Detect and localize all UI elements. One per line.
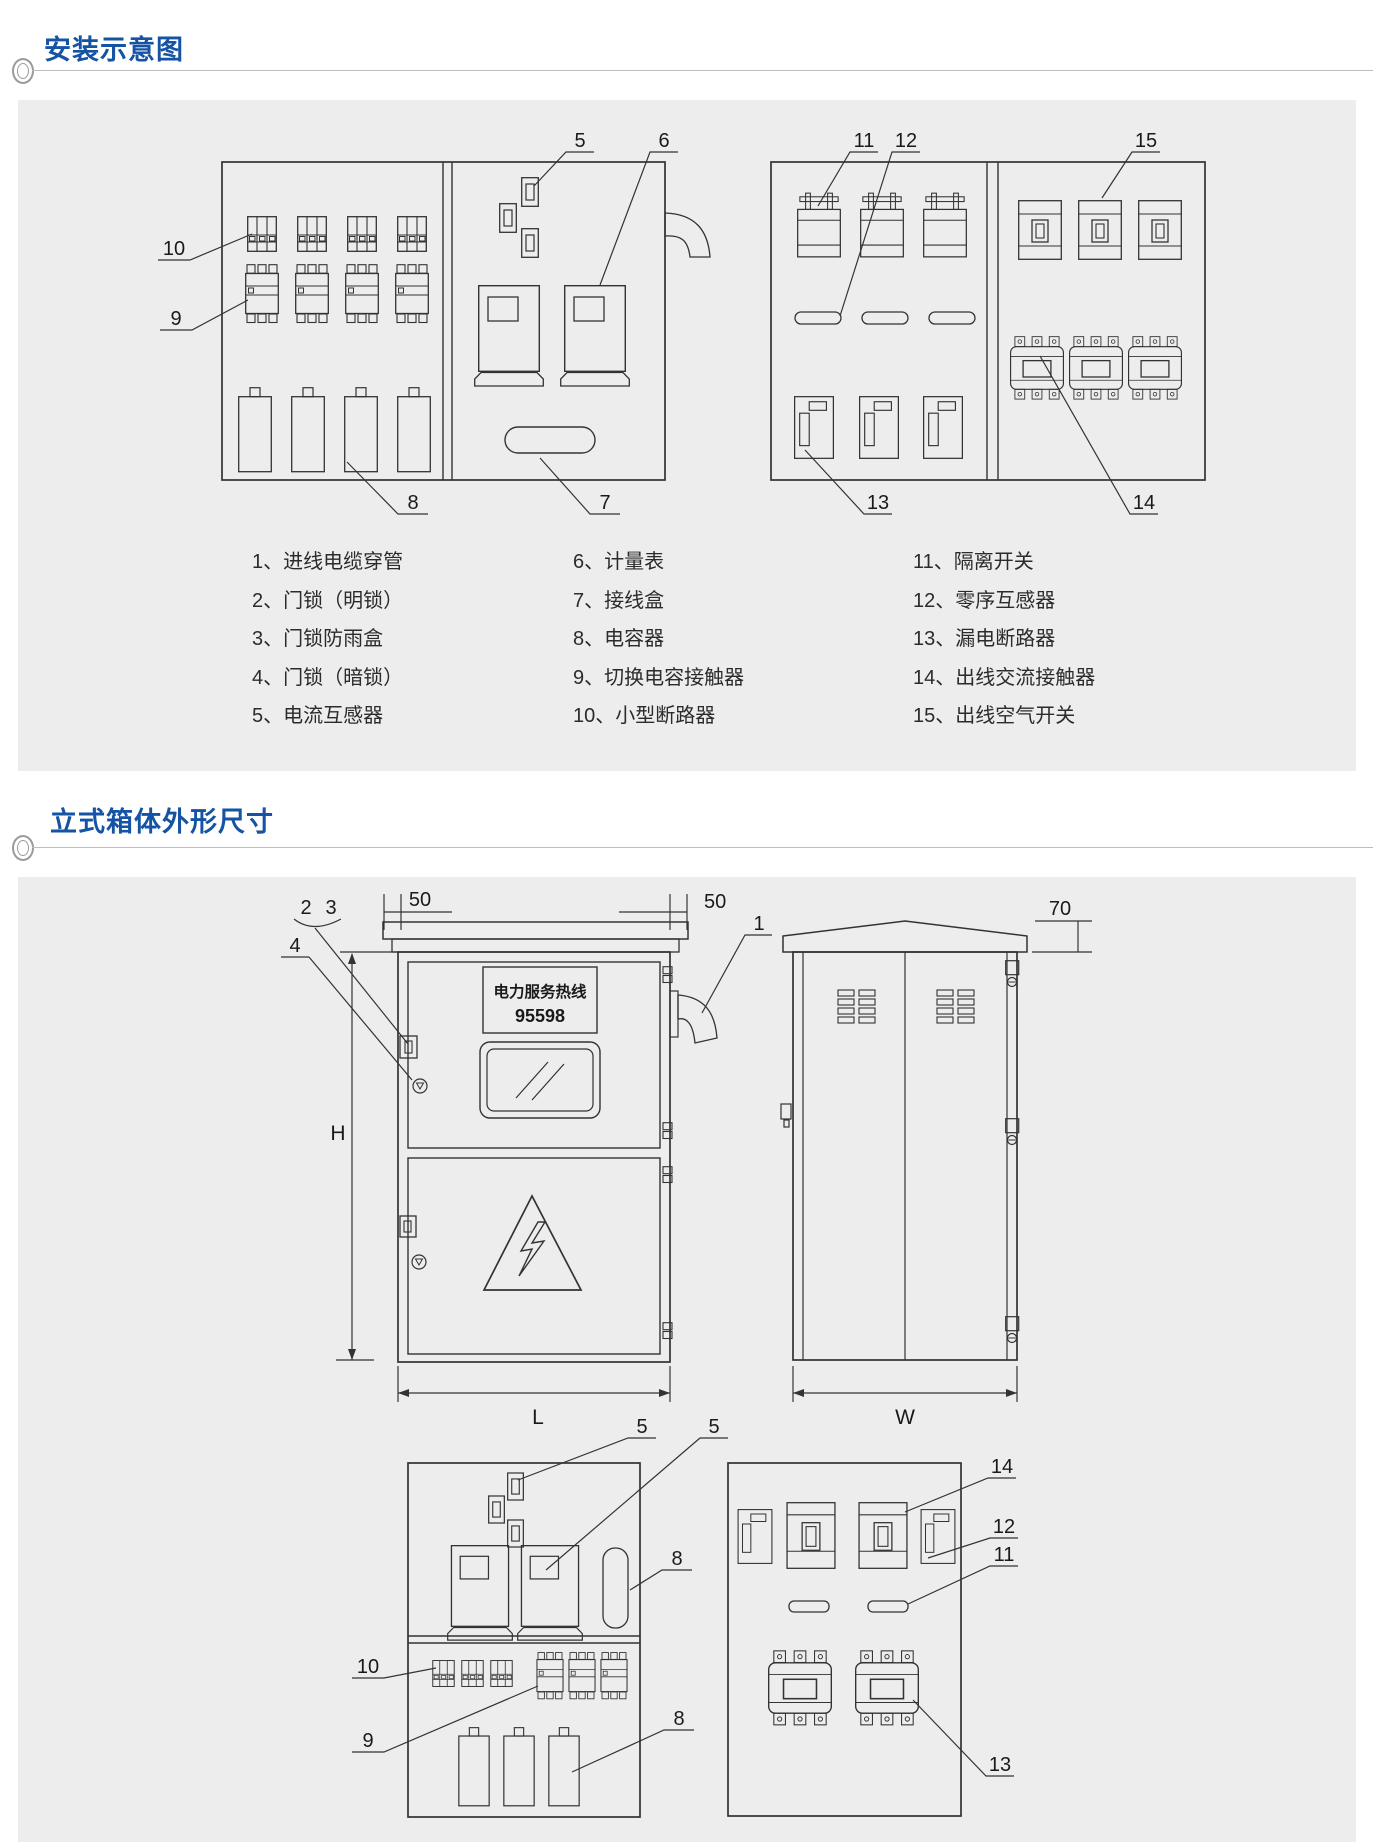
callout-capacitor: 8 — [673, 1708, 684, 1730]
mcb-symbol — [462, 1661, 483, 1687]
callout-isolator: 11 — [854, 130, 875, 152]
capacitor-symbol — [239, 388, 272, 472]
dim-arrows — [348, 953, 670, 1397]
dim-height: H — [330, 1122, 345, 1145]
section2-title: 立式箱体外形尺寸 — [50, 800, 274, 839]
mcb-symbol — [348, 217, 377, 252]
leakage-breaker-symbol — [738, 1510, 772, 1564]
manual-page: 安装示意图 立式箱体外形尺寸 1、进线电缆穿管 2、门锁（明锁） 3、门锁防雨盒… — [0, 0, 1373, 1848]
callout-lock-hidden: 4 — [289, 935, 300, 957]
capacitor-symbol — [459, 1728, 489, 1806]
dim-50-left: 50 — [409, 889, 431, 911]
dim-width: W — [895, 1406, 915, 1429]
install-right-callouts — [805, 152, 1160, 514]
dim-70: 70 — [1049, 898, 1071, 920]
current-transformers — [500, 178, 539, 258]
capacitor-symbol — [398, 388, 431, 472]
contactor-symbol — [296, 265, 329, 323]
front-view: 电力服务热线 95598 — [383, 922, 717, 1362]
contactor-symbol — [569, 1653, 595, 1699]
air-switch-row — [1019, 201, 1182, 260]
leakage-breaker-row — [795, 397, 963, 459]
lightning-icon — [519, 1222, 545, 1276]
callout-zero-ct: 12 — [993, 1516, 1015, 1538]
callout-air-switch: 15 — [1135, 130, 1157, 152]
section2-ring-icon — [12, 835, 34, 861]
zero-ct-symbol — [789, 1601, 829, 1612]
meter-window — [480, 1042, 600, 1118]
zero-ct-symbol — [929, 312, 975, 324]
leakage-breaker-symbol — [795, 397, 834, 459]
callout-ac-contactor: 14 — [1133, 492, 1155, 514]
section1-ring-icon — [12, 58, 34, 84]
callout-leakage: 13 — [867, 492, 889, 514]
air-switch-symbol — [1139, 201, 1182, 260]
hidden-lock — [413, 1079, 427, 1093]
side-view — [781, 921, 1027, 1360]
meter-symbol — [518, 1546, 583, 1641]
ct-symbol — [508, 1473, 524, 1500]
cable-conduit-symbol — [665, 213, 710, 257]
mcb-row — [248, 217, 427, 252]
section2-divider — [32, 847, 1373, 848]
sign-line1: 电力服务热线 — [493, 982, 587, 1001]
leakage-breaker-symbol — [924, 397, 963, 459]
contactor-symbol — [246, 265, 279, 323]
bottom-left-interior — [408, 1463, 640, 1817]
section1-divider — [32, 70, 1373, 71]
dim-length: L — [532, 1406, 544, 1429]
side-latch — [781, 1104, 791, 1127]
glass-glare — [516, 1062, 548, 1098]
isolator-symbol — [924, 193, 967, 257]
install-right-cabinet — [771, 162, 1205, 480]
install-diagram: 5 6 10 9 8 7 — [0, 100, 1373, 771]
lower-door-locks — [400, 1216, 426, 1269]
roof-lip — [392, 939, 679, 952]
isolator-symbol — [861, 193, 904, 257]
ct-symbol — [522, 178, 539, 207]
ac-contactor-row — [1011, 337, 1182, 399]
leakage-breaker-symbol — [860, 397, 899, 459]
callout-mcb: 10 — [357, 1656, 379, 1678]
callout-zero-ct: 12 — [895, 130, 917, 152]
capacitor-row — [239, 388, 431, 472]
callout-meter: 6 — [658, 130, 669, 152]
callout-ct: 5 — [574, 130, 585, 152]
callout-contactor: 9 — [170, 308, 181, 330]
ct-symbol — [522, 229, 539, 258]
side-roof — [783, 921, 1027, 952]
callout-breaker: 14 — [991, 1456, 1013, 1478]
dim-50-right: 50 — [704, 891, 726, 913]
warning-triangle — [484, 1196, 581, 1290]
callout-rain-box: 3 — [325, 897, 336, 919]
bottom-right-interior — [728, 1463, 961, 1816]
upper-door-locks — [400, 1036, 427, 1093]
ct-symbol — [489, 1496, 505, 1523]
callout-conduit: 1 — [753, 913, 764, 935]
callout-junction: 8 — [671, 1548, 682, 1570]
capacitor-symbol — [292, 388, 325, 472]
hidden-lock — [412, 1255, 426, 1269]
zero-ct-row — [795, 312, 975, 324]
contactor-symbol — [396, 265, 429, 323]
junction-box-symbol — [505, 427, 595, 453]
install-left-callouts — [158, 152, 678, 514]
ct-symbol — [508, 1520, 524, 1547]
callout-isolator: 11 — [994, 1544, 1015, 1566]
callout-contactor: 9 — [362, 1730, 373, 1752]
ct-symbol — [500, 204, 517, 233]
install-left-cabinet — [222, 162, 710, 480]
ac-contactor-symbol — [1070, 337, 1123, 399]
air-switch-symbol — [1019, 201, 1062, 260]
callout-capacitor: 8 — [407, 492, 418, 514]
ac-contactor-symbol — [1011, 337, 1064, 399]
meter-symbol — [475, 286, 544, 386]
callout-contactor: 13 — [989, 1754, 1011, 1776]
ac-contactor-symbol — [856, 1651, 919, 1725]
zero-ct-symbol — [795, 312, 841, 324]
capacitor-symbol — [345, 388, 378, 472]
mcb-symbol — [298, 217, 327, 252]
callout-lock-open: 2 — [300, 897, 311, 919]
mcb-symbol — [433, 1661, 454, 1687]
roof-top — [383, 922, 688, 939]
capacitor-symbol — [504, 1728, 534, 1806]
section1-title: 安装示意图 — [44, 28, 184, 67]
breaker-symbol — [859, 1503, 907, 1569]
callout-ct-a: 5 — [636, 1416, 647, 1438]
contactor-symbol — [601, 1653, 627, 1699]
junction-box-symbol — [603, 1548, 628, 1628]
dimensions-diagram: 电力服务热线 95598 — [0, 877, 1373, 1842]
capacitor-symbol — [549, 1728, 579, 1806]
mcb-symbol — [398, 217, 427, 252]
contactor-symbol — [537, 1653, 563, 1699]
contactor-row — [246, 265, 429, 323]
isolator-row — [798, 193, 967, 257]
callout-mcb: 10 — [163, 238, 185, 260]
callout-ct-b: 5 — [708, 1416, 719, 1438]
zero-ct-symbol — [862, 312, 908, 324]
callout-junction-box: 7 — [599, 492, 610, 514]
ac-contactor-symbol — [1129, 337, 1182, 399]
isolator-symbol — [798, 193, 841, 257]
sign-line2: 95598 — [515, 1006, 565, 1026]
air-switch-symbol — [1079, 201, 1122, 260]
vent-louvers — [838, 990, 974, 1023]
zero-ct-symbol — [868, 1601, 908, 1612]
contactor-symbol — [346, 265, 379, 323]
ac-contactor-symbol — [769, 1651, 832, 1725]
mcb-symbol — [491, 1661, 512, 1687]
meter-symbol — [561, 286, 630, 386]
breaker-symbol — [787, 1503, 835, 1569]
meter-symbol — [448, 1546, 513, 1641]
